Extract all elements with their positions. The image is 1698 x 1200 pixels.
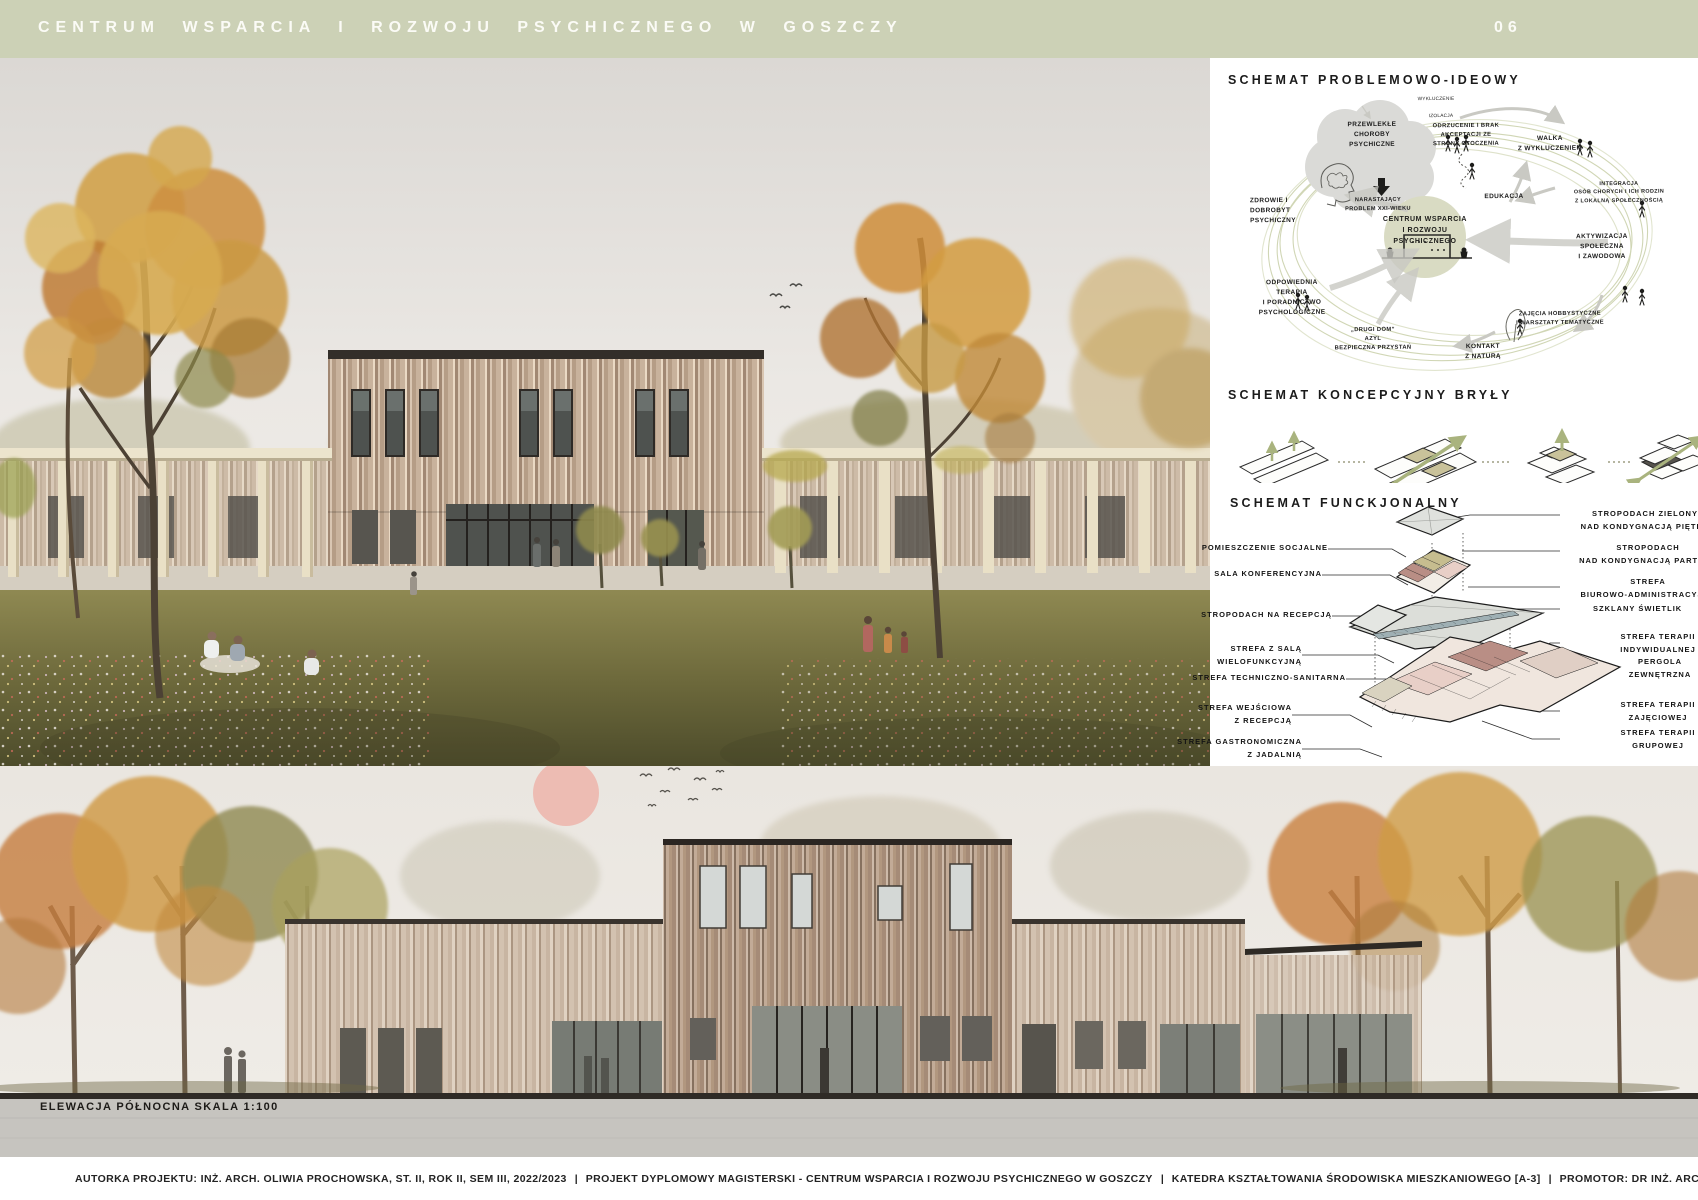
footer-divider-3: | <box>1541 1173 1560 1185</box>
upper-windows <box>352 390 688 456</box>
idea-cloud-subtitle: NARASTAJĄCY PROBLEM XXI-WIEKU <box>1328 196 1428 214</box>
page-title: CENTRUM WSPARCIA I ROZWOJU PSYCHICZNEGO … <box>38 19 903 37</box>
idea-cloud-title: PRZEWLEKŁE CHOROBY PSYCHICZNE <box>1328 120 1416 151</box>
func-label-right-0: STROPODACH ZIELONY NAD KONDYGNACJĄ PIĘTR… <box>1562 507 1698 533</box>
main-render <box>0 58 1210 766</box>
footer-project: PROJEKT DYPLOMOWY MAGISTERSKI - CENTRUM … <box>586 1173 1153 1185</box>
page-number: 06 <box>1494 19 1522 37</box>
idea-diagram: WYKLUCZENIE IZOLACJA ODRZUCENIE I BRAK A… <box>1210 92 1698 377</box>
func-label-left-2: STROPODACH NA RECEPCJĄ <box>1180 608 1332 621</box>
elevation-ground-line <box>0 1093 1698 1099</box>
elevation-annex <box>1245 941 1422 1093</box>
presentation-board: CENTRUM WSPARCIA I ROZWOJU PSYCHICZNEGO … <box>0 0 1698 1200</box>
idea-label-wykluczenie: WYKLUCZENIE <box>1406 96 1466 104</box>
footer-author: AUTORKA PROJEKTU: INŻ. ARCH. OLIWIA PROC… <box>75 1173 567 1185</box>
render-scene <box>0 58 1210 766</box>
concept-step-1 <box>1240 433 1328 483</box>
func-label-right-6: STREFA TERAPII ZAJĘCIOWEJ <box>1588 698 1698 724</box>
idea-heading: SCHEMAT PROBLEMOWO-IDEOWY <box>1228 73 1521 87</box>
func-label-left-5: STREFA WEJŚCIOWA Z RECEPCJĄ <box>1150 701 1292 727</box>
concept-heading: SCHEMAT KONCEPCYJNY BRYŁY <box>1228 388 1513 402</box>
func-label-right-5: PERGOLA ZEWNĘTRZNA <box>1605 655 1698 681</box>
func-label-right-1: STROPODACH NAD KONDYGNACJĄ PARTERU <box>1562 541 1698 567</box>
concept-step-2 <box>1375 437 1476 483</box>
axon-ground-floor <box>1360 637 1620 722</box>
footer-credits: AUTORKA PROJEKTU: INŻ. ARCH. OLIWIA PROC… <box>75 1173 1640 1185</box>
idea-label-integracja: INTEGRACJA OSÓB CHORYCH I ICH RODZIN Z L… <box>1550 179 1688 205</box>
idea-label-zdrowie: ZDROWIE I DOBROBYT PSYCHICZNY <box>1250 196 1320 227</box>
header-bar: CENTRUM WSPARCIA I ROZWOJU PSYCHICZNEGO … <box>0 0 1698 58</box>
func-label-left-0: POMIESZCZENIE SOCJALNE <box>1180 541 1328 554</box>
concept-step-4 <box>1640 435 1698 479</box>
func-label-left-4: STREFA TECHNICZNO-SANITARNA <box>1180 671 1346 684</box>
elevation-drawing <box>0 766 1698 1157</box>
idea-label-zajecia: ZAJĘCIA HOBBYSTYCZNE I WARSZTATY TEMATYC… <box>1500 309 1620 328</box>
idea-center-label: CENTRUM WSPARCIA I ROZWOJU PSYCHICZNEGO <box>1370 214 1480 248</box>
idea-label-aktywizacja: AKTYWIZACJA SPOŁECZNA I ZAWODOWA <box>1548 232 1656 263</box>
render-terrace <box>0 566 1210 592</box>
idea-squiggle-path <box>1459 154 1469 188</box>
render-main-building <box>328 350 764 570</box>
idea-label-drugi-dom: „DRUGI DOM” AZYL BEZPIECZNA PRZYSTAŃ <box>1318 326 1428 354</box>
footer-divider-1: | <box>567 1173 586 1185</box>
footer-divider-2: | <box>1153 1173 1172 1185</box>
render-pergola-right <box>762 446 1210 573</box>
elevation-left-wing <box>285 919 665 1093</box>
elevation-central-block <box>663 839 1012 1093</box>
footer-department: KATEDRA KSZTAŁTOWANIA ŚRODOWISKA MIESZKA… <box>1172 1173 1541 1185</box>
footer-promoter: PROMOTOR: DR INŻ. ARCH. PIOTR CELEWICZ <box>1560 1173 1698 1185</box>
elevation-title: ELEWACJA PÓŁNOCNA SKALA 1:100 <box>40 1101 279 1113</box>
func-label-right-2: STREFA BIUROWO-ADMINISTRACYJNA <box>1562 575 1698 601</box>
elevation-right-wing <box>1012 919 1245 1093</box>
func-label-right-3: SZKLANY ŚWIETLIK <box>1593 602 1698 615</box>
func-label-left-3: STREFA Z SALĄ WIELOFUNKCYJNĄ <box>1160 642 1302 668</box>
idea-label-odrzucenie: ODRZUCENIE I BRAK AKCEPTACJI ZE STRONY O… <box>1420 122 1512 150</box>
idea-label-terapia: ODPOWIEDNIA TERAPIA I PORADNICTWO PSYCHO… <box>1246 278 1338 319</box>
func-label-right-4: STREFA TERAPII INDYWIDUALNEJ <box>1588 630 1698 656</box>
func-label-left-1: SALA KONFERENCYJNA <box>1180 567 1322 580</box>
axon-upper-floor <box>1397 550 1470 593</box>
idea-label-walka: WALKA Z WYKLUCZENIEM <box>1510 134 1590 155</box>
func-label-right-7: STREFA TERAPII GRUPOWEJ <box>1588 726 1698 752</box>
axon-top-slab <box>1397 507 1463 535</box>
func-label-left-6: STREFA GASTRONOMICZNA Z JADALNIĄ <box>1150 735 1302 761</box>
footer-bar: AUTORKA PROJEKTU: INŻ. ARCH. OLIWIA PROC… <box>0 1157 1698 1200</box>
idea-label-edukacja: EDUKACJA <box>1472 192 1536 203</box>
concept-step-3 <box>1528 431 1594 483</box>
concept-diagram <box>1210 405 1698 483</box>
idea-label-izolacja: IZOLACJA <box>1416 113 1466 121</box>
functional-diagram: POMIESZCZENIE SOCJALNE SALA KONFERENCYJN… <box>1210 505 1698 768</box>
idea-label-kontakt: KONTAKT Z NATURĄ <box>1448 342 1518 363</box>
